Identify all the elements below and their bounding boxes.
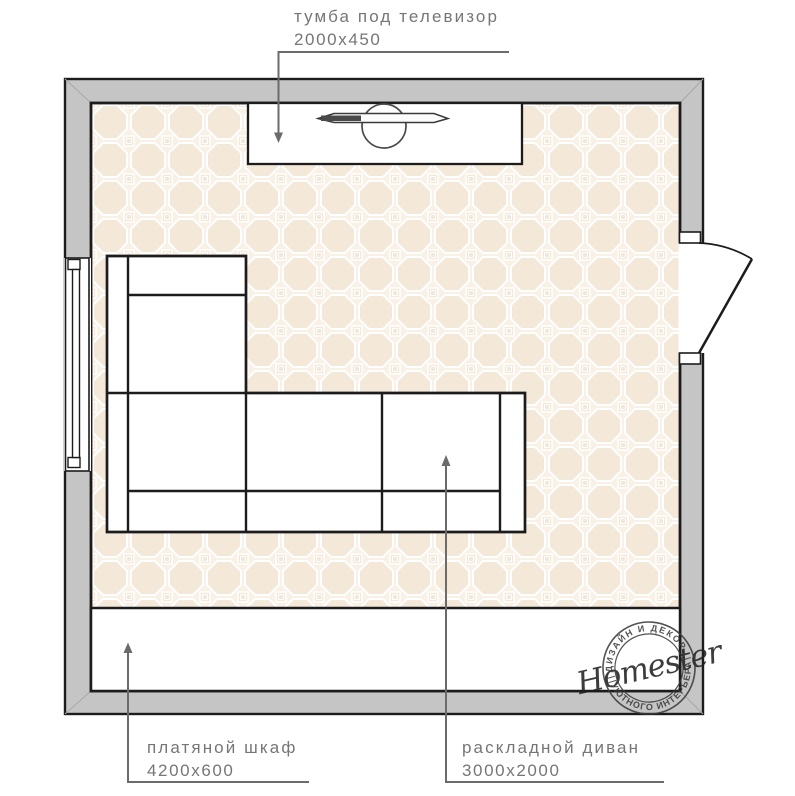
tv-stand bbox=[248, 103, 522, 164]
label-sofa-name: раскладной диван bbox=[462, 738, 640, 757]
tv-base-icon bbox=[362, 104, 406, 148]
floor-plan-canvas: тумба под телевизор 2000x450 платяной шк… bbox=[0, 0, 795, 796]
tv-screen-edge bbox=[321, 116, 361, 122]
door-swing-arc bbox=[699, 243, 752, 259]
label-tv-stand-name: тумба под телевизор bbox=[294, 7, 499, 26]
door-jamb-bottom bbox=[680, 353, 701, 364]
door-opening bbox=[679, 243, 707, 353]
window-pane bbox=[73, 270, 80, 458]
label-tv-stand-dimensions: 2000x450 bbox=[294, 30, 381, 49]
door-jamb-top bbox=[680, 232, 701, 243]
label-wardrobe-name: платяной шкаф bbox=[147, 738, 297, 757]
door bbox=[679, 232, 753, 364]
window bbox=[64, 258, 91, 471]
window-sill-bottom bbox=[68, 458, 80, 468]
window-sill-top bbox=[68, 260, 80, 270]
door-leaf bbox=[699, 259, 752, 353]
floor-plan-page: тумба под телевизор 2000x450 платяной шк… bbox=[0, 0, 795, 796]
label-wardrobe-dimensions: 4200x600 bbox=[147, 761, 234, 780]
label-sofa-dimensions: 3000x2000 bbox=[462, 761, 561, 780]
